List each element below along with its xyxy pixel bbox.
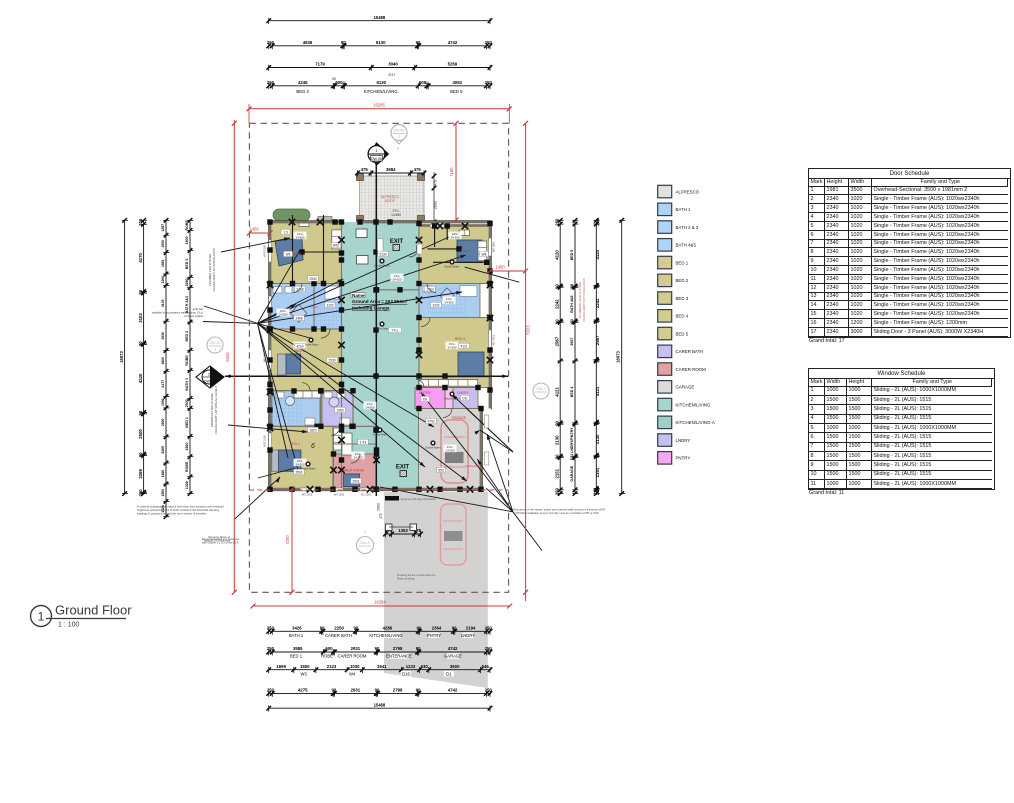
svg-text:1 : 100: 1 : 100 — [58, 622, 80, 629]
svg-text:1: 1 — [38, 610, 45, 624]
svg-text:Ground Floor: Ground Floor — [55, 603, 132, 618]
